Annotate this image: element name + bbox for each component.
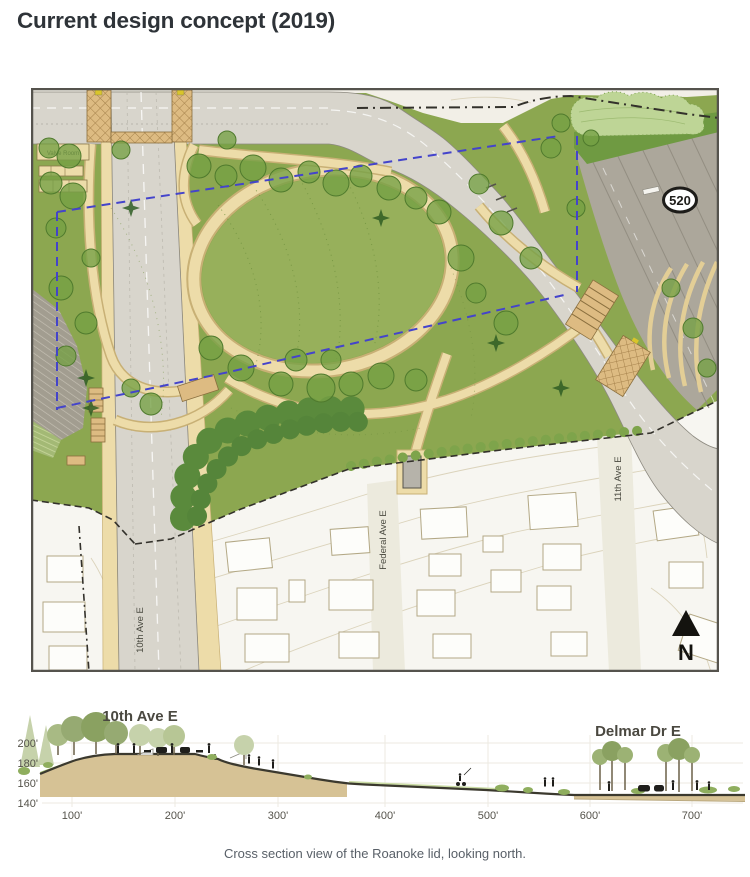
page: Current design concept (2019) [0, 0, 750, 877]
tenth-ave-label: 10th Ave E [135, 607, 146, 653]
site-plan-map: Valve Room [31, 88, 719, 672]
y-tick-140: 140' [18, 798, 38, 810]
highway-520-label: 520 [669, 193, 691, 208]
x-tick-100: 100' [62, 810, 82, 822]
site-plan-svg: Valve Room [31, 88, 719, 672]
north-arrow-label: N [678, 640, 694, 665]
x-tick-700: 700' [682, 810, 702, 822]
x-tick-500: 500' [478, 810, 498, 822]
figure-caption: Cross section view of the Roanoke lid, l… [0, 846, 750, 861]
y-tick-200: 200' [18, 738, 38, 750]
federal-ave-label: Federal Ave E [378, 510, 389, 570]
y-tick-160: 160' [18, 778, 38, 790]
y-tick-180: 180' [18, 758, 38, 770]
cross-section-svg: 10th Ave E Delmar Dr E 200' 180' 160' 14… [8, 695, 745, 840]
section-label-10th-ave: 10th Ave E [102, 708, 178, 725]
x-tick-200: 200' [165, 810, 185, 822]
page-title: Current design concept (2019) [17, 8, 335, 34]
distance-axis: 100' 200' 300' 400' 500' 600' 700' [62, 810, 702, 822]
x-tick-300: 300' [268, 810, 288, 822]
x-tick-400: 400' [375, 810, 395, 822]
highway-520-shield-icon: 520 [664, 188, 697, 212]
section-label-delmar-dr: Delmar Dr E [595, 723, 681, 740]
eleventh-ave-label: 11th Ave E [613, 456, 624, 501]
cross-section: 10th Ave E Delmar Dr E 200' 180' 160' 14… [8, 695, 745, 840]
x-tick-600: 600' [580, 810, 600, 822]
